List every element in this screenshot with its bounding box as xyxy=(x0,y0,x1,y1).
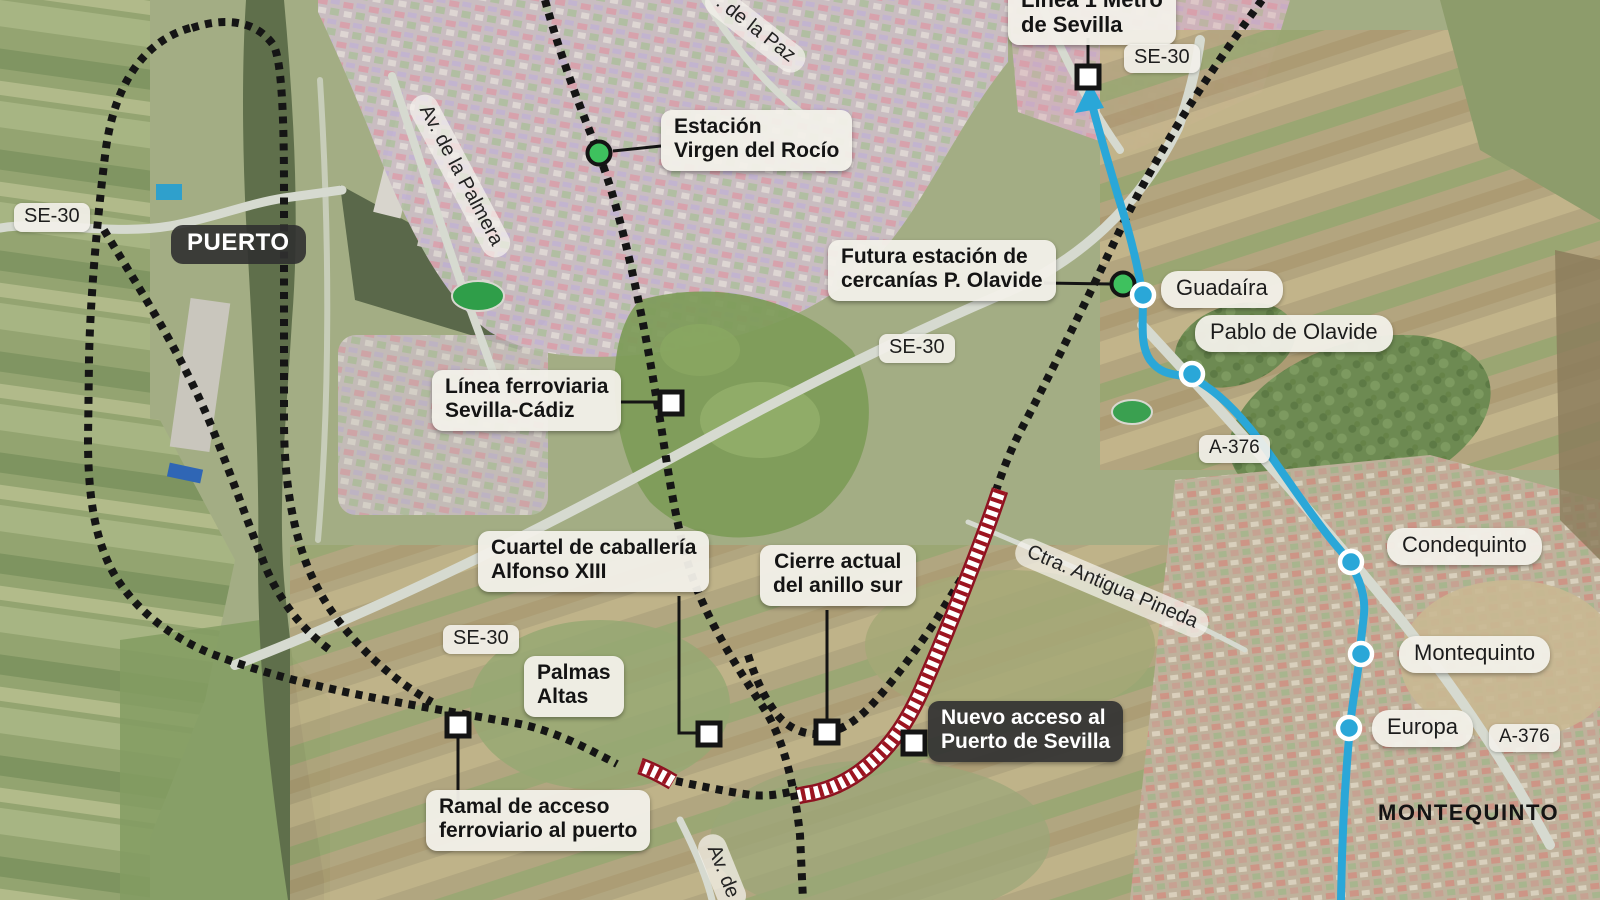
road-label-se30-left: SE-30 xyxy=(14,203,90,232)
annotation-ramal: Ramal de acceso ferroviario al puerto xyxy=(426,790,650,851)
annotation-line: ferroviario al puerto xyxy=(439,819,637,843)
annotation-nuevo-acceso: Nuevo acceso al Puerto de Sevilla xyxy=(928,701,1123,762)
annotation-futura-olavide: Futura estación de cercanías P. Olavide xyxy=(828,240,1056,301)
marker-square-cuartel xyxy=(698,723,720,745)
marker-square-nuevo-acceso xyxy=(903,732,925,754)
annotation-line: Virgen del Rocío xyxy=(674,139,839,163)
annotation-line: Altas xyxy=(537,685,611,709)
region-label-montequinto: MONTEQUINTO xyxy=(1378,800,1559,826)
annotation-line: Alfonso XIII xyxy=(491,560,696,584)
metro-station-label-condequinto: Condequinto xyxy=(1387,528,1542,565)
annotation-line: del anillo sur xyxy=(773,574,903,598)
marker-metro-pablo-olavide xyxy=(1181,363,1203,385)
metro-station-label-montequinto: Montequinto xyxy=(1399,636,1550,673)
annotation-line: Línea ferroviaria xyxy=(445,375,608,399)
marker-square-palmas xyxy=(447,714,469,736)
annotation-line: Futura estación de xyxy=(841,245,1043,269)
annotation-line: Cuartel de caballería xyxy=(491,536,696,560)
marker-metro-europa xyxy=(1338,717,1360,739)
annotation-cierre: Cierre actual del anillo sur xyxy=(760,545,916,606)
marker-square-cierre xyxy=(816,721,838,743)
annotation-line: Estación xyxy=(674,115,839,139)
marker-square-metro-end xyxy=(1077,66,1099,88)
annotation-linea1-metro: Línea 1 Metro de Sevilla xyxy=(1008,0,1176,45)
road-label-se30-mid: SE-30 xyxy=(879,334,955,363)
annotation-palmas-altas: Palmas Altas xyxy=(524,656,624,717)
map-canvas: Línea 1 Metro de Sevilla SE-30 SE-30 SE-… xyxy=(0,0,1600,900)
metro-station-label-europa: Europa xyxy=(1372,710,1473,747)
road-label-a376-se: A-376 xyxy=(1489,724,1560,752)
annotation-line: Puerto de Sevilla xyxy=(941,730,1110,754)
annotation-line: Línea 1 Metro xyxy=(1021,0,1163,12)
marker-metro-guadaira xyxy=(1132,284,1154,306)
annotation-line: Cierre actual xyxy=(773,550,903,574)
metro-station-label-pablo-olavide: Pablo de Olavide xyxy=(1195,315,1393,352)
marker-station-virgen-rocio xyxy=(588,142,611,165)
annotation-line: cercanías P. Olavide xyxy=(841,269,1043,293)
annotation-line: Ramal de acceso xyxy=(439,795,637,819)
annotation-linea-ferroviaria: Línea ferroviaria Sevilla-Cádiz xyxy=(432,370,621,431)
annotation-line: Nuevo acceso al xyxy=(941,706,1110,730)
road-label-a376-mid: A-376 xyxy=(1199,435,1270,463)
area-label-puerto: PUERTO xyxy=(171,225,306,264)
marker-metro-montequinto xyxy=(1350,643,1372,665)
metro-station-label-guadaira: Guadaíra xyxy=(1161,271,1283,308)
annotation-line: Palmas xyxy=(537,661,611,685)
marker-metro-condequinto xyxy=(1340,551,1362,573)
annotation-line: de Sevilla xyxy=(1021,12,1163,37)
road-label-se30-sw: SE-30 xyxy=(443,625,519,654)
annotation-cuartel: Cuartel de caballería Alfonso XIII xyxy=(478,531,709,592)
road-label-se30-top: SE-30 xyxy=(1124,44,1200,73)
annotation-line: Sevilla-Cádiz xyxy=(445,399,608,423)
marker-square-linea-ferroviaria xyxy=(660,392,682,414)
annotation-estacion-virgen: Estación Virgen del Rocío xyxy=(661,110,852,171)
